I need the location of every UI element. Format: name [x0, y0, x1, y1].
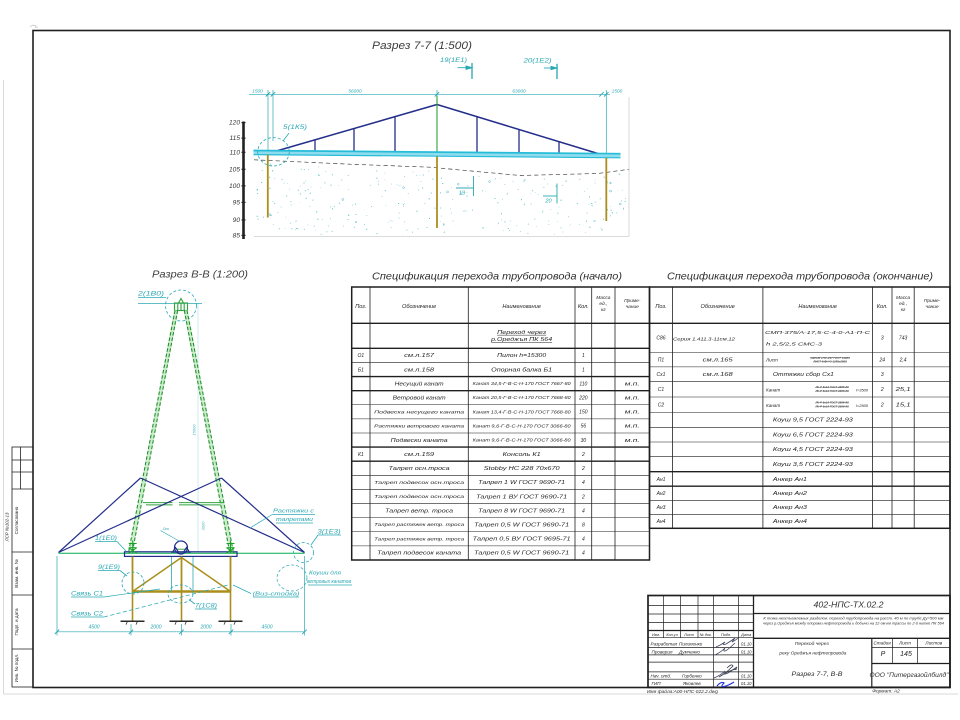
- svg-text:Ан4: Ан4: [656, 519, 666, 525]
- svg-text:30: 30: [581, 438, 587, 444]
- svg-text:Растяжки с: Растяжки с: [273, 509, 314, 515]
- svg-text:Канат 13,4-Г-В-С-Н-170 ГОСТ 76: Канат 13,4-Г-В-С-Н-170 ГОСТ 7668-80: [473, 409, 572, 414]
- svg-text:743: 743: [899, 336, 908, 342]
- svg-text:h 2,5/2,5 СМС-3: h 2,5/2,5 СМС-3: [766, 342, 823, 347]
- svg-text:5(1К5): 5(1К5): [283, 125, 307, 131]
- svg-text:и: и: [509, 230, 510, 232]
- svg-text:Ось: Ось: [163, 527, 170, 531]
- svg-text:м.п.: м.п.: [625, 396, 640, 402]
- svg-text:(Виз-стойка): (Виз-стойка): [253, 591, 300, 598]
- svg-text:Спецификация перехода трубопро: Спецификация перехода трубопровода (окон…: [667, 271, 933, 283]
- svg-text:Канат 34,5-Г-В-С-Н-170 ГОСТ 76: Канат 34,5-Г-В-С-Н-170 ГОСТ 7667-80: [473, 381, 572, 386]
- svg-text:Наименование: Наименование: [502, 304, 541, 310]
- svg-text:т: т: [315, 230, 316, 232]
- svg-text:01.10: 01.10: [741, 681, 752, 686]
- svg-text:чание: чание: [926, 305, 939, 310]
- svg-text:Разработал: Разработал: [651, 642, 678, 647]
- svg-text:С1: С1: [658, 387, 665, 393]
- svg-text:з: з: [531, 204, 532, 206]
- svg-text:Коуш 6,5 ГОСТ 2224-93: Коуш 6,5 ГОСТ 2224-93: [773, 432, 853, 438]
- svg-text:7(1С8): 7(1С8): [195, 604, 217, 610]
- svg-text:Масса: Масса: [596, 295, 611, 301]
- svg-text:Яковлев: Яковлев: [682, 681, 701, 686]
- svg-text:м.п.: м.п.: [625, 424, 640, 430]
- svg-text:2,4: 2,4: [899, 358, 907, 364]
- svg-text:15,1: 15,1: [896, 403, 911, 409]
- svg-text:Обозначение: Обозначение: [701, 304, 735, 310]
- svg-text:01.10: 01.10: [741, 642, 752, 647]
- svg-text:Оттяжки сбор Сх1: Оттяжки сбор Сх1: [773, 372, 834, 378]
- svg-text:з: з: [378, 183, 379, 186]
- svg-text:Ан1: Ан1: [656, 477, 666, 483]
- svg-text:Изм.: Изм.: [652, 633, 660, 637]
- svg-text:С2: С2: [658, 403, 665, 409]
- svg-text:100: 100: [229, 183, 240, 190]
- svg-text:т: т: [610, 206, 611, 208]
- svg-text:Канат: Канат: [766, 403, 780, 408]
- svg-text:Талреп растяжек ветр. троса: Талреп растяжек ветр. троса: [374, 536, 465, 541]
- svg-text:ЛИСТ 6-ВН-О 1250х2500: ЛИСТ 6-ВН-О 1250х2500: [812, 360, 847, 364]
- svg-text:СМП-375/А-17,5-С-4-0-А1-П-С: СМП-375/А-17,5-С-4-0-А1-П-С: [765, 330, 871, 335]
- svg-text:19(1Е1): 19(1Е1): [440, 58, 467, 64]
- svg-text:Пилон h=15300: Пилон h=15300: [497, 353, 546, 359]
- svg-text:Подвески каната: Подвески каната: [391, 438, 448, 444]
- svg-text:Имя файла:А00-НПС-022.2.dwg: Имя файла:А00-НПС-022.2.dwg: [647, 688, 718, 695]
- svg-text:з: з: [465, 210, 466, 213]
- svg-text:Сх1: Сх1: [657, 372, 666, 378]
- svg-text:Подп.: Подп.: [721, 633, 731, 637]
- svg-text:Анкер Ан3: Анкер Ан3: [771, 505, 807, 511]
- svg-text:Канат 9,6-Г-В-С-Н-170 ГОСТ 306: Канат 9,6-Г-В-С-Н-170 ГОСТ 3066-80: [473, 438, 572, 443]
- svg-text:Талреп 1 W ГОСТ 9690-71: Талреп 1 W ГОСТ 9690-71: [478, 480, 565, 486]
- svg-text:з: з: [403, 206, 404, 208]
- svg-text:м.п.: м.п.: [625, 381, 640, 387]
- svg-text:3: 3: [881, 336, 884, 342]
- svg-text:Стадия: Стадия: [873, 641, 891, 646]
- svg-text:К тома неотъемлемых разделов:: К тома неотъемлемых разделов: переход тр…: [763, 615, 943, 620]
- svg-text:4500: 4500: [261, 625, 272, 631]
- svg-text:Формат: А2: Формат: А2: [872, 689, 900, 695]
- svg-text:2000: 2000: [199, 625, 211, 631]
- svg-text:20(1Е2): 20(1Е2): [522, 59, 551, 65]
- svg-text:Анкер Ан2: Анкер Ан2: [771, 491, 807, 497]
- svg-text:Переход через: Переход через: [795, 641, 829, 646]
- svg-text:90: 90: [233, 217, 241, 224]
- svg-text:кг: кг: [601, 308, 606, 313]
- svg-text:Проверил: Проверил: [652, 650, 673, 655]
- svg-text:3: 3: [881, 372, 884, 378]
- svg-text:Анкер Ан4: Анкер Ан4: [771, 519, 807, 525]
- svg-text:.: .: [541, 231, 542, 235]
- svg-text:Талреп 8 W ГОСТ 9690-71: Талреп 8 W ГОСТ 9690-71: [478, 508, 565, 514]
- svg-text:Анкер Ан1: Анкер Ан1: [771, 477, 807, 483]
- svg-text:кг: кг: [901, 308, 906, 313]
- svg-text:Наименование: Наименование: [798, 304, 837, 310]
- svg-text:Талреп подвесок каната: Талреп подвесок каната: [377, 551, 461, 557]
- svg-text:402-НПС-ТХ.02.2: 402-НПС-ТХ.02.2: [814, 601, 885, 610]
- svg-text:56: 56: [581, 424, 587, 430]
- svg-text:Обозначение: Обозначение: [402, 304, 436, 310]
- svg-text:Канат 20,5-Г-В-С-Н-170 ГОСТ 76: Канат 20,5-Г-В-С-Н-170 ГОСТ 7668-80: [473, 395, 572, 400]
- svg-text:2: 2: [880, 403, 884, 409]
- svg-text:4: 4: [582, 551, 585, 557]
- svg-text:Спецификация перехода трубопро: Спецификация перехода трубопровода (нача…: [372, 271, 622, 283]
- svg-text:Растяжки ветрового каната: Растяжки ветрового каната: [374, 423, 465, 428]
- svg-text:Масса: Масса: [896, 295, 911, 301]
- svg-text:з: з: [558, 206, 559, 208]
- svg-text:115: 115: [229, 135, 240, 142]
- svg-text:Лист: Лист: [898, 641, 911, 646]
- svg-text:2: 2: [880, 387, 884, 393]
- svg-text:220: 220: [578, 396, 588, 402]
- svg-text:Кол.уч: Кол.уч: [666, 633, 677, 637]
- svg-text:1500: 1500: [612, 88, 623, 94]
- svg-text:Талреп подвесок осн.троса: Талреп подвесок осн.троса: [374, 494, 465, 499]
- svg-text:С86: С86: [656, 336, 665, 342]
- svg-text:Горбенко: Горбенко: [682, 674, 702, 679]
- svg-text:с: с: [300, 186, 301, 188]
- svg-text:Талреп подвесок осн.троса: Талреп подвесок осн.троса: [374, 480, 465, 485]
- svg-text:Поз.: Поз.: [355, 304, 366, 310]
- svg-text:56000: 56000: [348, 89, 362, 95]
- svg-text:4: 4: [582, 508, 585, 514]
- svg-text:ООО "Питергазойлбилд": ООО "Питергазойлбилд": [870, 672, 950, 679]
- svg-text:63000: 63000: [512, 89, 526, 95]
- svg-text:2: 2: [581, 452, 585, 458]
- svg-text:Разрез В-В (1:200): Разрез В-В (1:200): [152, 269, 248, 281]
- svg-text:Приме-: Приме-: [924, 298, 941, 304]
- svg-text:Лист: Лист: [765, 358, 778, 363]
- svg-text:1500: 1500: [252, 89, 263, 95]
- svg-text:ЛСР №102-13: ЛСР №102-13: [5, 512, 10, 542]
- svg-text:т: т: [388, 222, 389, 224]
- svg-text:талрепами: талрепами: [276, 517, 313, 523]
- svg-text:Ан2: Ан2: [656, 491, 666, 497]
- svg-text:Подп. и дата: Подп. и дата: [14, 608, 19, 636]
- svg-text:Талреп растяжек ветр. троса: Талреп растяжек ветр. троса: [374, 522, 465, 527]
- svg-text:Ветровой канат: Ветровой канат: [393, 395, 446, 402]
- svg-text:Талреп ветр. троса: Талреп ветр. троса: [385, 508, 453, 514]
- svg-text:3000: 3000: [201, 521, 206, 531]
- svg-text:Кол.: Кол.: [578, 304, 589, 310]
- svg-text:№ док.: № док.: [700, 633, 712, 637]
- svg-text:з: з: [466, 192, 467, 194]
- svg-text:Опорная балка Б1: Опорная балка Б1: [491, 367, 552, 373]
- svg-text:Б1: Б1: [358, 367, 364, 373]
- svg-text:Лист: Лист: [683, 633, 694, 637]
- svg-text:Канат: Канат: [766, 388, 780, 393]
- svg-text:т: т: [587, 188, 588, 190]
- svg-text:01.10: 01.10: [741, 650, 752, 655]
- svg-text:см.л.168: см.л.168: [703, 372, 733, 378]
- svg-text:Кол.: Кол.: [877, 304, 888, 310]
- svg-text:Подвеска несущего каната: Подвеска несущего каната: [374, 409, 465, 414]
- svg-text:ед.,: ед.,: [599, 301, 607, 307]
- svg-text:Талреп 0,5 W ГОСТ 9690-71: Талреп 0,5 W ГОСТ 9690-71: [474, 523, 569, 529]
- svg-text:К1: К1: [358, 452, 364, 458]
- svg-text:2(1В0): 2(1В0): [137, 292, 164, 298]
- svg-text:е: е: [366, 215, 367, 217]
- svg-text:х: х: [625, 198, 626, 200]
- svg-text:4: 4: [582, 537, 585, 543]
- svg-text:8: 8: [582, 523, 585, 529]
- svg-text:ЛК-Р 6х19 ГОСТ 2688-80: ЛК-Р 6х19 ГОСТ 2688-80: [814, 389, 849, 393]
- svg-text:2000: 2000: [149, 625, 161, 631]
- svg-text:Коуши для: Коуши для: [309, 571, 341, 577]
- svg-text:150: 150: [579, 410, 588, 416]
- svg-text:Талреп 0,5 W ГОСТ 9690-71: Талреп 0,5 W ГОСТ 9690-71: [474, 551, 569, 557]
- svg-text:Коуш 4,5 ГОСТ 2224-93: Коуш 4,5 ГОСТ 2224-93: [773, 447, 853, 453]
- svg-text:з: з: [307, 225, 308, 227]
- svg-text:Stobby HC 228 70х670: Stobby HC 228 70х670: [484, 466, 560, 472]
- svg-text:Разрез 7-7 (1:500): Разрез 7-7 (1:500): [372, 40, 472, 52]
- svg-text:145: 145: [900, 651, 912, 658]
- svg-text:ветровых канатов: ветровых канатов: [307, 579, 351, 585]
- svg-text:2: 2: [581, 494, 585, 500]
- svg-text:чание: чание: [626, 305, 639, 310]
- svg-text:Согласовано: Согласовано: [14, 506, 19, 534]
- svg-text:19: 19: [459, 191, 465, 197]
- svg-text:Думченко: Думченко: [678, 650, 700, 655]
- svg-text:см.л.157: см.л.157: [404, 353, 434, 359]
- svg-text:85: 85: [233, 232, 241, 239]
- svg-text:1: 1: [582, 367, 585, 373]
- svg-text:и: и: [399, 185, 400, 187]
- svg-text:П1: П1: [658, 358, 665, 364]
- svg-text:ЛК-Р 6х19 ГОСТ 2688-80: ЛК-Р 6х19 ГОСТ 2688-80: [814, 405, 849, 409]
- svg-text:з: з: [562, 232, 563, 234]
- svg-text:l=3500: l=3500: [856, 388, 869, 393]
- svg-text:Несущий канат: Несущий канат: [395, 380, 444, 387]
- svg-text:105: 105: [229, 166, 240, 173]
- svg-text:Консоль К1: Консоль К1: [503, 452, 541, 458]
- svg-text:Нач. отд.: Нач. отд.: [651, 674, 672, 679]
- svg-text:О1: О1: [358, 353, 365, 359]
- svg-text:01.10: 01.10: [741, 674, 752, 679]
- svg-text:м.п.: м.п.: [625, 410, 640, 416]
- svg-text:110: 110: [579, 381, 587, 387]
- svg-text:е: е: [520, 231, 521, 233]
- svg-text:1: 1: [582, 353, 585, 359]
- svg-text:Пилипенко: Пилипенко: [679, 642, 703, 647]
- svg-text:Приме-: Приме-: [624, 298, 641, 304]
- svg-text:м.п.: м.п.: [625, 438, 640, 444]
- svg-text:с: с: [286, 216, 287, 218]
- svg-text:см.л.165: см.л.165: [703, 358, 733, 364]
- svg-text:Талреп 0,5 ВУ ГОСТ 9695-71: Талреп 0,5 ВУ ГОСТ 9695-71: [473, 537, 571, 543]
- svg-text:Талреп осн.троса: Талреп осн.троса: [389, 466, 450, 472]
- svg-text:см.л.159: см.л.159: [404, 452, 434, 458]
- svg-text:95: 95: [233, 199, 241, 206]
- svg-text:Дата: Дата: [740, 633, 751, 637]
- svg-text:2: 2: [581, 466, 585, 472]
- svg-text:через р.Ореджъя между опорами: через р.Ореджъя между опорами нефтепрово…: [763, 621, 945, 626]
- svg-text:110: 110: [229, 149, 240, 156]
- svg-text:Переход через: Переход через: [497, 330, 547, 336]
- svg-text:15000: 15000: [192, 424, 197, 436]
- svg-text:ГИП: ГИП: [652, 681, 662, 686]
- svg-text:см.л.158: см.л.158: [404, 367, 434, 373]
- svg-text:Разрез 7-7, В-В: Разрез 7-7, В-В: [792, 671, 843, 678]
- svg-text:4500: 4500: [88, 625, 99, 631]
- svg-text:ед.,: ед.,: [899, 301, 907, 307]
- svg-text:24: 24: [878, 358, 885, 364]
- svg-text:4: 4: [582, 480, 585, 486]
- svg-text:Коуш 9,5 ГОСТ 2224-93: Коуш 9,5 ГОСТ 2224-93: [773, 418, 853, 424]
- svg-text:120: 120: [229, 120, 240, 127]
- svg-text:р.Ореджъя ПК 564: р.Ореджъя ПК 564: [490, 337, 553, 343]
- svg-text:Канат 9,6-Г-В-С-Н-170 ГОСТ 306: Канат 9,6-Г-В-С-Н-170 ГОСТ 3066-80: [473, 424, 572, 429]
- svg-text:Листов: Листов: [924, 641, 942, 646]
- svg-text:реку Ореджъя нефтепровода: реку Ореджъя нефтепровода: [778, 651, 847, 656]
- svg-text:Р: Р: [881, 651, 886, 658]
- svg-text:Ан3: Ан3: [656, 505, 666, 511]
- svg-text:l=2600: l=2600: [856, 403, 869, 408]
- svg-text:Серия 1.411.3-11см.12: Серия 1.411.3-11см.12: [673, 336, 736, 341]
- svg-text:Инв. № подл.: Инв. № подл.: [14, 654, 19, 683]
- svg-text:Взам. инв. №: Взам. инв. №: [14, 559, 19, 588]
- svg-text:25,1: 25,1: [894, 387, 911, 393]
- svg-text:Поз.: Поз.: [655, 304, 666, 310]
- svg-text:о: о: [381, 196, 382, 198]
- svg-text:Коуш 3,5 ГОСТ 2224-93: Коуш 3,5 ГОСТ 2224-93: [773, 462, 853, 468]
- svg-text:о: о: [291, 205, 292, 207]
- svg-text:Талреп 1 ВУ ГОСТ 9690-71: Талреп 1 ВУ ГОСТ 9690-71: [476, 494, 567, 500]
- svg-text:20: 20: [544, 199, 552, 205]
